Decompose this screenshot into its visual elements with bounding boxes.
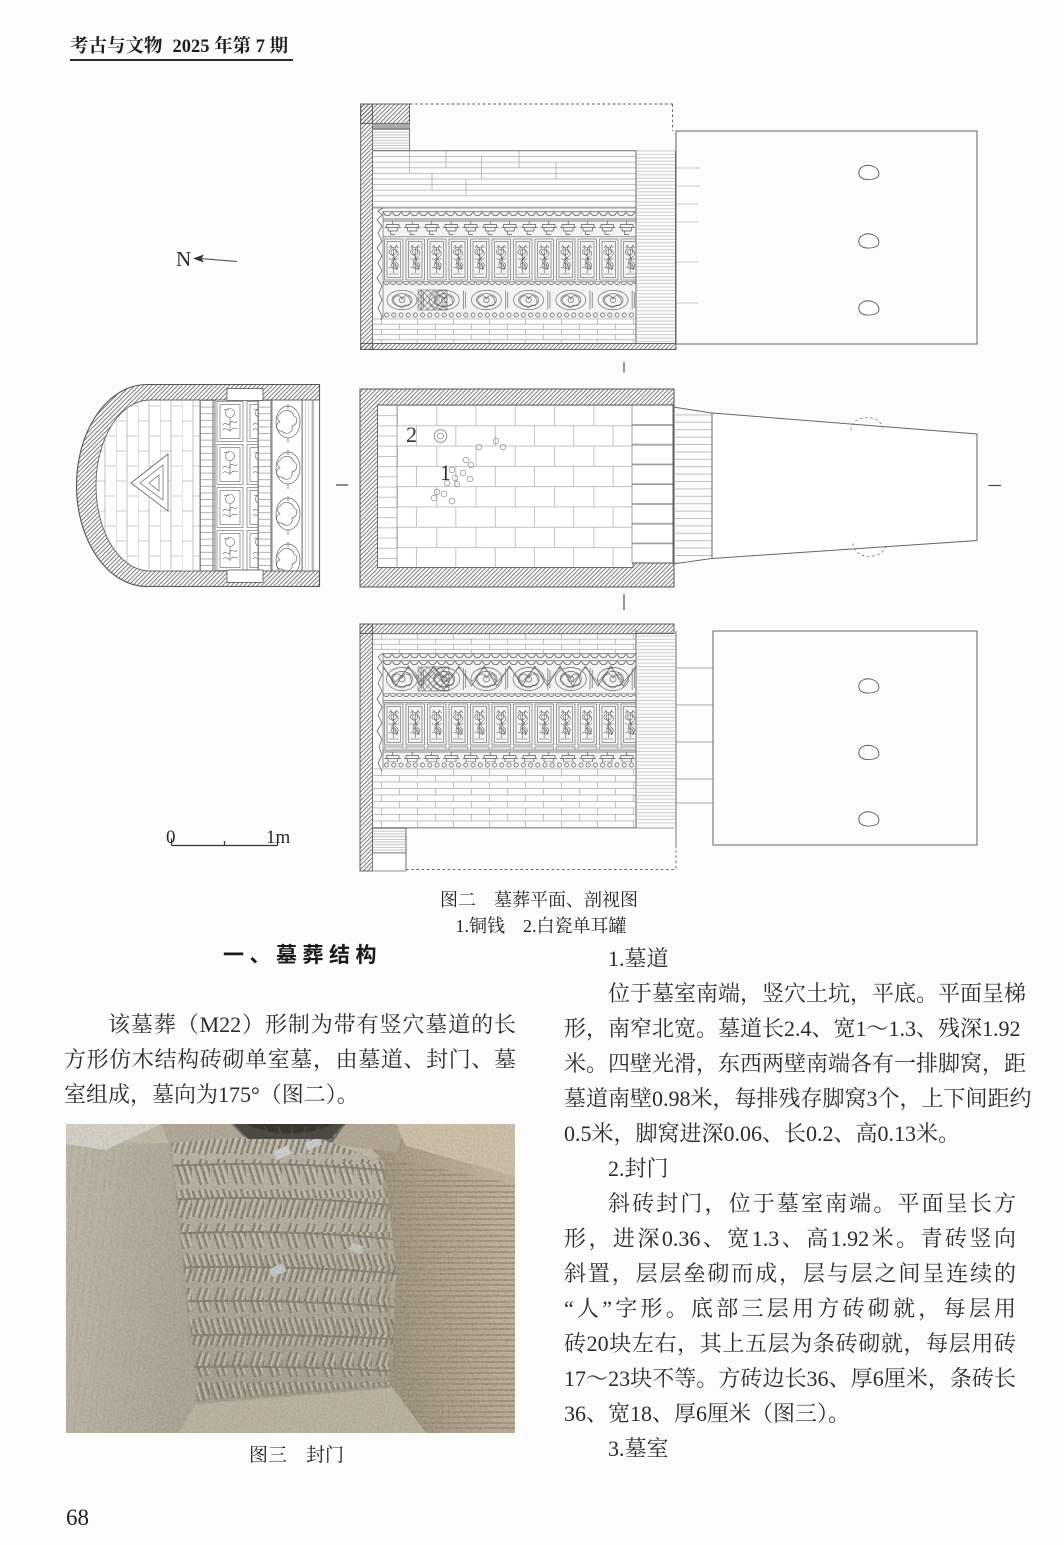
svg-text:0: 0 [166,827,176,848]
svg-text:N: N [176,247,191,271]
svg-text:2: 2 [406,422,417,447]
svg-text:1: 1 [440,460,451,485]
svg-text:1m: 1m [266,827,291,848]
